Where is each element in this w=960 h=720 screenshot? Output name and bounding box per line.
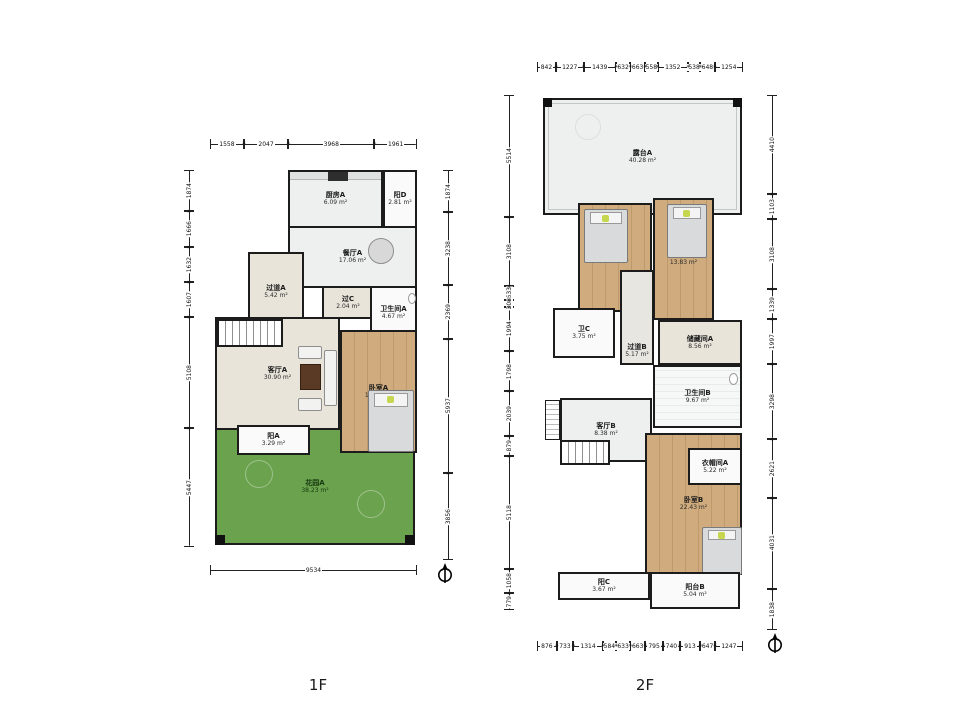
room-label: 客厅A	[268, 366, 287, 374]
dimension-value: 1439	[591, 64, 608, 71]
room-area: 30.90 m²	[264, 375, 291, 382]
room-area: 8.56 m²	[688, 344, 712, 351]
dimension-value: 9534	[305, 567, 322, 574]
dimension-segment: 3298	[767, 364, 777, 438]
room-balcony-d: 阳D 2.81 m²	[383, 170, 417, 228]
room-area: 6.09 m²	[324, 200, 348, 207]
dimension-segment: 3108	[767, 219, 777, 289]
dimension-value: 876	[540, 643, 553, 650]
room-label: 客厅B	[596, 422, 615, 430]
dimension-segment: 1994	[504, 307, 514, 351]
floor-plan-1f: 厨房A 6.09 m² 阳D 2.81 m² 餐厅A 17.06 m² 过道A …	[210, 170, 417, 547]
dimension-value: 1838	[769, 601, 776, 618]
dimension-segment: 9534	[210, 565, 417, 575]
watermark	[357, 490, 385, 518]
dimension-value: 4410	[769, 136, 776, 153]
dimension-value: 1607	[186, 291, 193, 308]
dimension-value: 779	[506, 595, 513, 608]
room-area: 3.75 m²	[572, 334, 596, 341]
room-label: 花园A	[305, 479, 324, 487]
room-area: 4.67 m²	[382, 314, 406, 321]
dimension-row-2f-bottom: 87673313145846336637957409136471247	[537, 641, 743, 651]
dimension-value: 3108	[506, 243, 513, 260]
room-pass-c: 过C 2.04 m²	[322, 286, 374, 319]
room-area: 22.43 m²	[680, 505, 707, 512]
dimension-value: 1254	[720, 64, 737, 71]
dimension-segment: 1997	[767, 319, 777, 364]
room-balcony-a: 阳A 3.29 m²	[237, 425, 310, 455]
dimension-segment: 1798	[504, 351, 514, 391]
dimension-segment: 1607	[184, 282, 194, 317]
dimension-value: 1339	[769, 296, 776, 313]
room-area: 5.17 m²	[625, 352, 649, 359]
dimension-value: 1666	[186, 220, 193, 237]
dimension-segment: 1558	[210, 139, 244, 149]
room-dining-a: 餐厅A 17.06 m²	[288, 226, 417, 288]
dimension-value: 2621	[769, 460, 776, 477]
dimension-segment: 1632	[184, 247, 194, 282]
room-area: 3.67 m²	[592, 587, 616, 594]
room-area: 2.04 m²	[336, 304, 360, 311]
room-label: 阳D	[394, 191, 407, 199]
room-area: 5.04 m²	[683, 592, 707, 599]
room-area: 13.83 m²	[670, 260, 697, 267]
dimension-segment: 5447	[184, 428, 194, 546]
chaise-icon	[324, 350, 337, 406]
dimension-value: 842	[540, 64, 553, 71]
dimension-value: 1058	[506, 572, 513, 589]
dimension-segment: 5108	[184, 317, 194, 428]
dimension-value: 1961	[387, 141, 404, 148]
room-area: 8.38 m²	[594, 431, 618, 438]
dimension-value: 1314	[579, 643, 596, 650]
dimension-segment: 3238	[443, 212, 453, 285]
dimension-segment: 779	[504, 593, 514, 610]
room-area: 9.67 m²	[686, 398, 710, 405]
dimension-segment: 5937	[443, 339, 453, 473]
dimension-segment: 4031	[767, 498, 777, 589]
wall-pillar	[215, 535, 225, 545]
bed-icon	[368, 390, 414, 452]
dimension-value: 1247	[720, 643, 737, 650]
dimension-row-2f-top: 8421227143963266355813525386481254	[537, 62, 743, 72]
room-label: 露台A	[633, 149, 652, 157]
floor-label-2f: 2F	[620, 676, 670, 694]
dimension-segment: 3968	[288, 139, 374, 149]
room-label: 过C	[342, 295, 354, 303]
room-area: 5.22 m²	[703, 468, 727, 475]
dimension-row-1f-top: 1558204739681961	[210, 139, 417, 149]
room-area: 38.23 m²	[301, 488, 328, 495]
dimension-value: 3238	[445, 240, 452, 257]
dimension-row-1f-bottom: 9534	[210, 565, 417, 575]
room-label: 衣帽间A	[702, 459, 728, 467]
floor-plan-page: 厨房A 6.09 m² 阳D 2.81 m² 餐厅A 17.06 m² 过道A …	[0, 0, 960, 720]
dimension-segment: 1254	[715, 62, 743, 72]
dimension-value: 879	[506, 439, 513, 452]
dimension-segment: 1339	[767, 289, 777, 319]
dining-table-icon	[368, 238, 394, 264]
room-hallway-b: 过道B 5.17 m²	[620, 270, 654, 365]
watermark	[575, 114, 601, 140]
dimension-segment: 5514	[504, 95, 514, 217]
dimension-value: 795	[647, 643, 660, 650]
room-label: 阳台B	[685, 583, 704, 591]
room-area: 17.06 m²	[339, 258, 366, 265]
bed-icon	[667, 204, 707, 258]
dimension-value: 1558	[218, 141, 235, 148]
dimension-row-1f-left: 187416661632160751085447	[184, 170, 194, 547]
dimension-value: 3298	[769, 393, 776, 410]
toilet-icon	[408, 293, 416, 304]
dimension-value: 1632	[186, 256, 193, 273]
dimension-segment: 1247	[715, 641, 743, 651]
dimension-value: 2369	[445, 303, 452, 320]
dimension-value: 5118	[506, 504, 513, 521]
dimension-value: 1997	[769, 333, 776, 350]
dimension-value: 740	[665, 643, 678, 650]
dimension-value: 1798	[506, 363, 513, 380]
dimension-segment: 1666	[184, 211, 194, 247]
dimension-segment: 1314	[573, 641, 603, 651]
sofa-icon	[298, 346, 322, 359]
dimension-value: 1874	[186, 182, 193, 199]
wall-pillar	[733, 98, 742, 107]
room-storage-a: 储藏间A 8.56 m²	[658, 320, 742, 365]
room-bath-c: 卫C 3.75 m²	[553, 308, 615, 358]
north-arrow-icon	[436, 562, 454, 588]
dimension-value: 1352	[664, 64, 681, 71]
dimension-segment: 5118	[504, 456, 514, 569]
dimension-value: 733	[558, 643, 571, 650]
dimension-segment: 2621	[767, 439, 777, 498]
dimension-segment: 1838	[767, 589, 777, 630]
dimension-segment: 2039	[504, 391, 514, 436]
room-label: 餐厅A	[343, 249, 362, 257]
dimension-segment: 913	[680, 641, 701, 651]
floor-label-1f: 1F	[293, 676, 343, 694]
dimension-segment: 2369	[443, 285, 453, 338]
dimension-value: 1874	[445, 183, 452, 200]
room-area: 40.28 m²	[629, 158, 656, 165]
dimension-segment: 3108	[504, 217, 514, 286]
wall-pillar	[543, 98, 552, 107]
dimension-value: 3968	[323, 141, 340, 148]
coffee-table-icon	[300, 364, 321, 390]
dimension-value: 913	[683, 643, 696, 650]
room-balcony-c: 阳C 3.67 m²	[558, 572, 650, 600]
room-label: 过道B	[627, 343, 646, 351]
dimension-row-1f-right: 18743238236959373856	[443, 170, 453, 560]
room-label: 储藏间A	[687, 335, 713, 343]
toilet-icon	[729, 373, 738, 385]
room-area: 3.29 m²	[262, 441, 286, 448]
dimension-segment: 1103	[767, 194, 777, 219]
dimension-segment: 3856	[443, 473, 453, 560]
dimension-value: 1994	[506, 320, 513, 337]
dimension-value: 5447	[186, 479, 193, 496]
wall-pillar	[405, 535, 415, 545]
dimension-value: 5514	[506, 147, 513, 164]
railing	[545, 400, 560, 440]
bed-icon	[584, 209, 628, 263]
room-label: 阳A	[267, 432, 279, 440]
dimension-segment: 1227	[556, 62, 584, 72]
room-label: 卫C	[578, 325, 590, 333]
dimension-segment: 1961	[374, 139, 417, 149]
room-label: 卫生间A	[380, 305, 406, 313]
room-label: 过道A	[266, 284, 285, 292]
dimension-value: 5937	[445, 397, 452, 414]
dimension-segment: 1058	[504, 569, 514, 592]
dimension-value: 3856	[445, 508, 452, 525]
room-bath-b: 卫生间B 9.67 m²	[653, 365, 742, 428]
stove-icon	[328, 172, 348, 181]
room-label: 卧室B	[684, 496, 703, 504]
dimension-value: 1227	[561, 64, 578, 71]
stairs-icon	[217, 319, 283, 347]
dimension-segment: 2047	[244, 139, 288, 149]
dimension-segment: 1874	[443, 170, 453, 212]
north-arrow-icon	[766, 632, 784, 658]
room-balcony-b: 阳台B 5.04 m²	[650, 572, 740, 609]
dimension-segment: 1439	[584, 62, 616, 72]
dimension-segment: 4410	[767, 95, 777, 194]
dimension-value: 2047	[257, 141, 274, 148]
stairs-icon	[560, 440, 610, 465]
room-bedroom-a: 卧室A 19.13 m²	[340, 330, 417, 453]
dimension-segment: 1352	[658, 62, 688, 72]
watermark	[245, 460, 273, 488]
dimension-value: 3108	[769, 246, 776, 263]
dimension-value: 1103	[769, 198, 776, 215]
room-area: 2.81 m²	[388, 200, 412, 207]
floor-plan-2f: 露台A 40.28 m² 卧室C 11.87 m² 卧室D 13.83 m² 卫…	[530, 95, 745, 615]
dimension-value: 4031	[769, 534, 776, 551]
dimension-value: 2039	[506, 405, 513, 422]
room-area: 5.42 m²	[264, 293, 288, 300]
dimension-value: 5108	[186, 364, 193, 381]
bed-icon	[702, 527, 742, 575]
dimension-segment: 1874	[184, 170, 194, 211]
room-bedroom-d: 卧室D 13.83 m²	[653, 198, 714, 320]
room-label: 厨房A	[326, 191, 345, 199]
sofa-icon	[298, 398, 322, 411]
room-closet-a: 衣帽间A 5.22 m²	[688, 448, 742, 485]
room-label: 卫生间B	[684, 389, 710, 397]
dimension-row-2f-left: 5514310863330819941798203987951181058779	[504, 95, 514, 610]
dimension-row-2f-right: 441011033108133919973298262140311838	[767, 95, 777, 630]
room-label: 阳C	[598, 578, 610, 586]
